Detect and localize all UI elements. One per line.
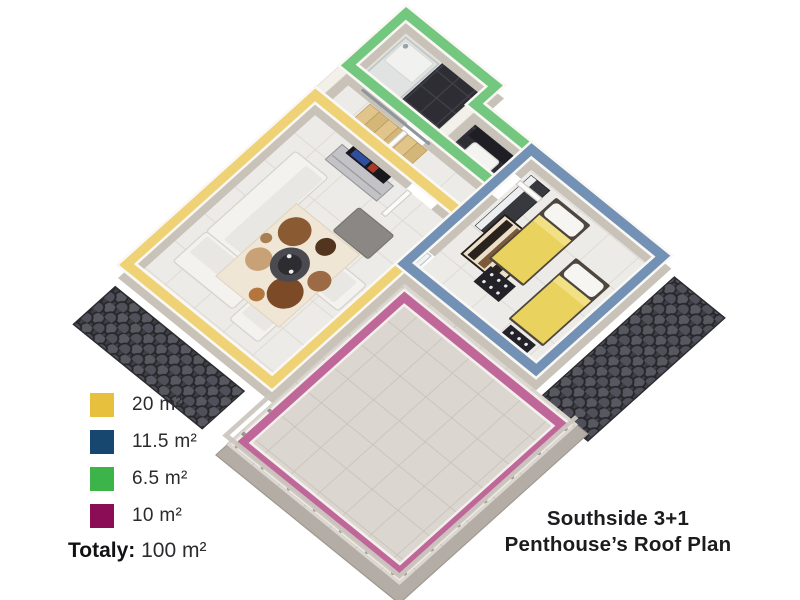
bedroom-swatch [90,430,114,454]
bedroom-area-label: 11.5 m² [132,431,197,453]
living-room-area-label: 20 m² [132,394,182,416]
total-area-label: Totaly: [68,539,135,562]
screenshot-root: 20 m² 11.5 m² 6.5 m² 10 m² Totaly: 100 m… [0,0,800,600]
living-room-swatch [90,393,114,417]
legend-row-terrace: 10 m² [68,501,288,531]
bathroom-swatch [90,467,114,491]
total-area: Totaly: 100 m² [68,539,288,563]
bathroom-area-label: 6.5 m² [132,468,188,490]
plan-title-line2: Penthouse’s Roof Plan [488,532,748,558]
terrace-area-label: 10 m² [132,505,182,527]
area-legend: 20 m² 11.5 m² 6.5 m² 10 m² Totaly: 100 m… [68,390,288,563]
total-area-value: 100 m² [141,539,206,562]
plan-title: Southside 3+1 Penthouse’s Roof Plan [488,506,748,558]
legend-row-bathroom: 6.5 m² [68,464,288,494]
legend-row-bedroom: 11.5 m² [68,427,288,457]
legend-row-living-room: 20 m² [68,390,288,420]
plan-title-line1: Southside 3+1 [488,506,748,532]
terrace-swatch [90,504,114,528]
